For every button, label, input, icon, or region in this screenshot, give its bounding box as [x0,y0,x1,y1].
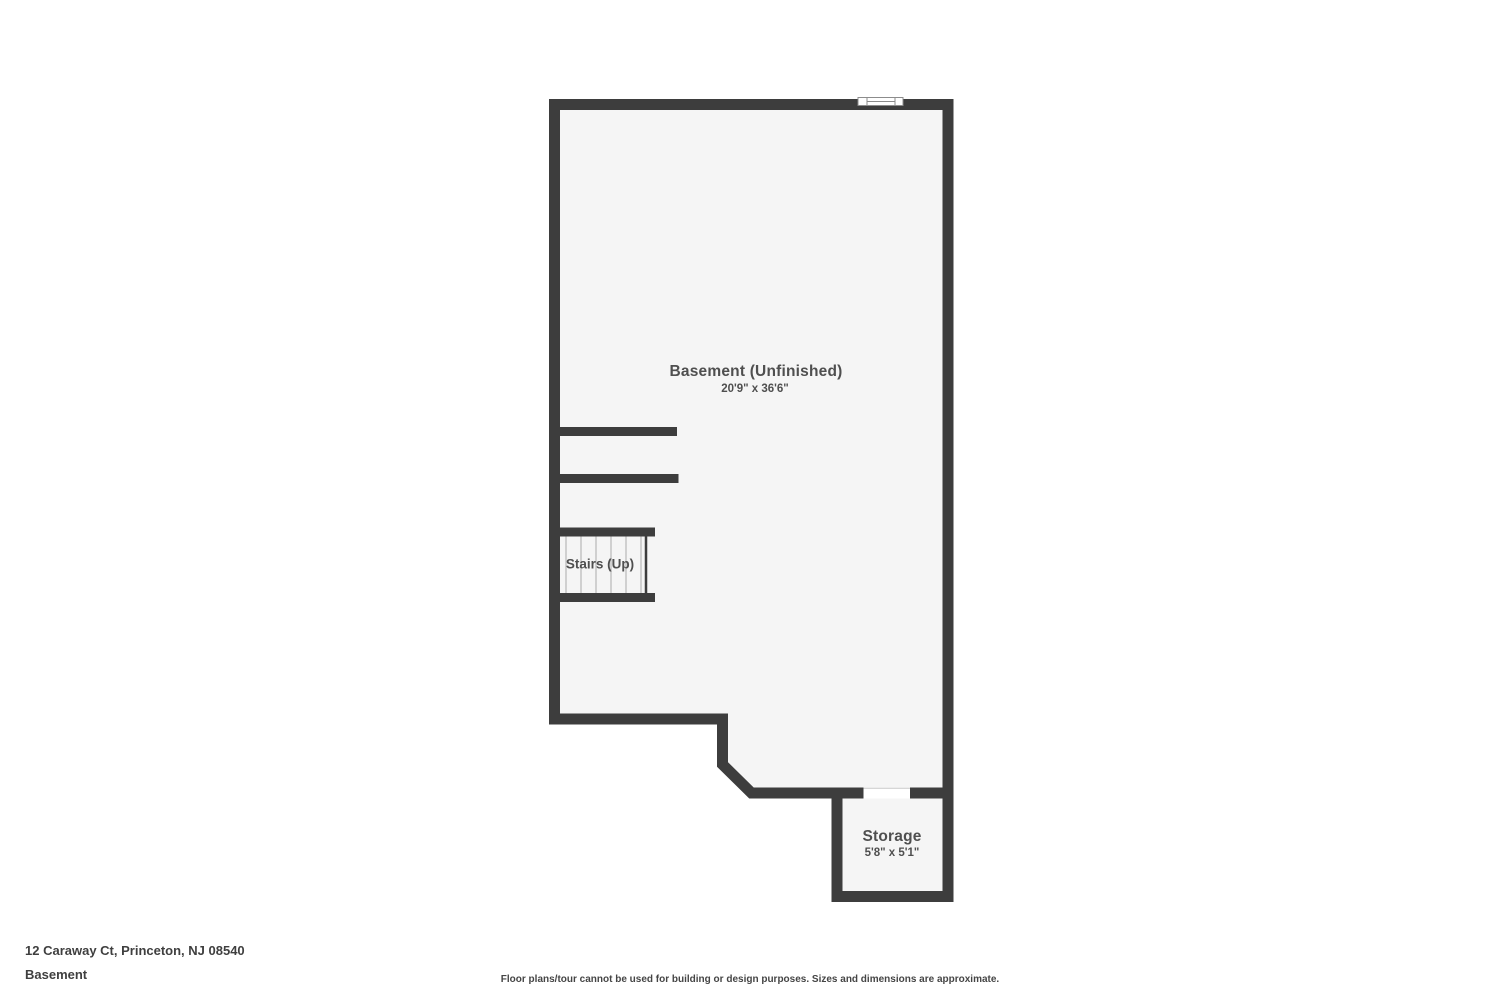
basement-room-label: Basement (Unfinished) [670,363,843,381]
stairs-label: Stairs (Up) [566,557,634,572]
property-address: 12 Caraway Ct, Princeton, NJ 08540 [25,943,245,958]
basement-room-dimensions: 20'9" x 36'6" [721,383,789,395]
window-icon [858,98,903,106]
floorplan-page: Basement (Unfinished) 20'9" x 36'6" Stai… [0,0,1500,1000]
storage-room-dimensions: 5'8" x 5'1" [865,847,920,859]
floor-plan-drawing [0,0,1500,1000]
door-opening [864,788,911,799]
floor-area [549,99,954,902]
disclaimer-text: Floor plans/tour cannot be used for buil… [0,974,1500,985]
storage-room-label: Storage [862,828,921,846]
